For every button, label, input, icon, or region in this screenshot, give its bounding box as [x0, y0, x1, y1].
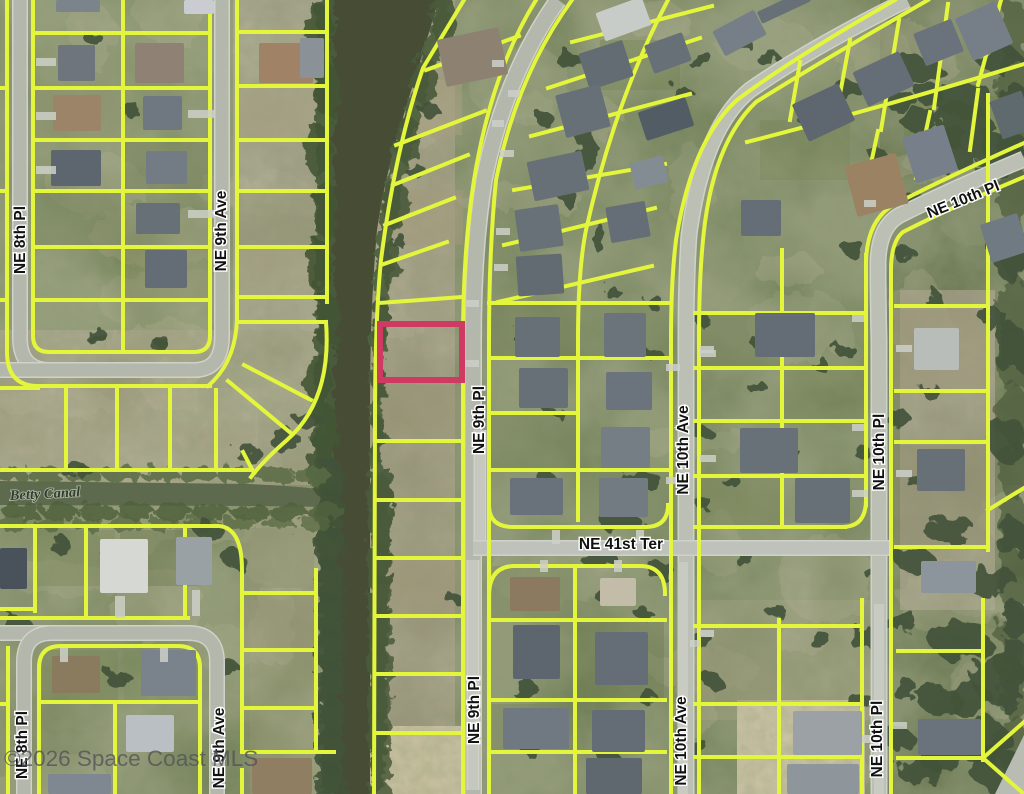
svg-text:NE 10th Ave: NE 10th Ave	[675, 405, 692, 495]
svg-text:©2026 Space Coast MLS: ©2026 Space Coast MLS	[4, 746, 258, 771]
svg-text:NE 10th Pl: NE 10th Pl	[871, 414, 888, 491]
svg-text:NE 10th Pl: NE 10th Pl	[869, 701, 886, 778]
svg-text:NE 10th Ave: NE 10th Ave	[673, 696, 690, 786]
svg-text:NE 9th Ave: NE 9th Ave	[213, 190, 230, 271]
svg-text:NE 9th Pl: NE 9th Pl	[466, 676, 483, 744]
svg-text:NE 9th Pl: NE 9th Pl	[471, 386, 488, 454]
svg-text:NE 41st Ter: NE 41st Ter	[579, 536, 663, 553]
svg-text:NE 8th Pl: NE 8th Pl	[12, 206, 29, 274]
